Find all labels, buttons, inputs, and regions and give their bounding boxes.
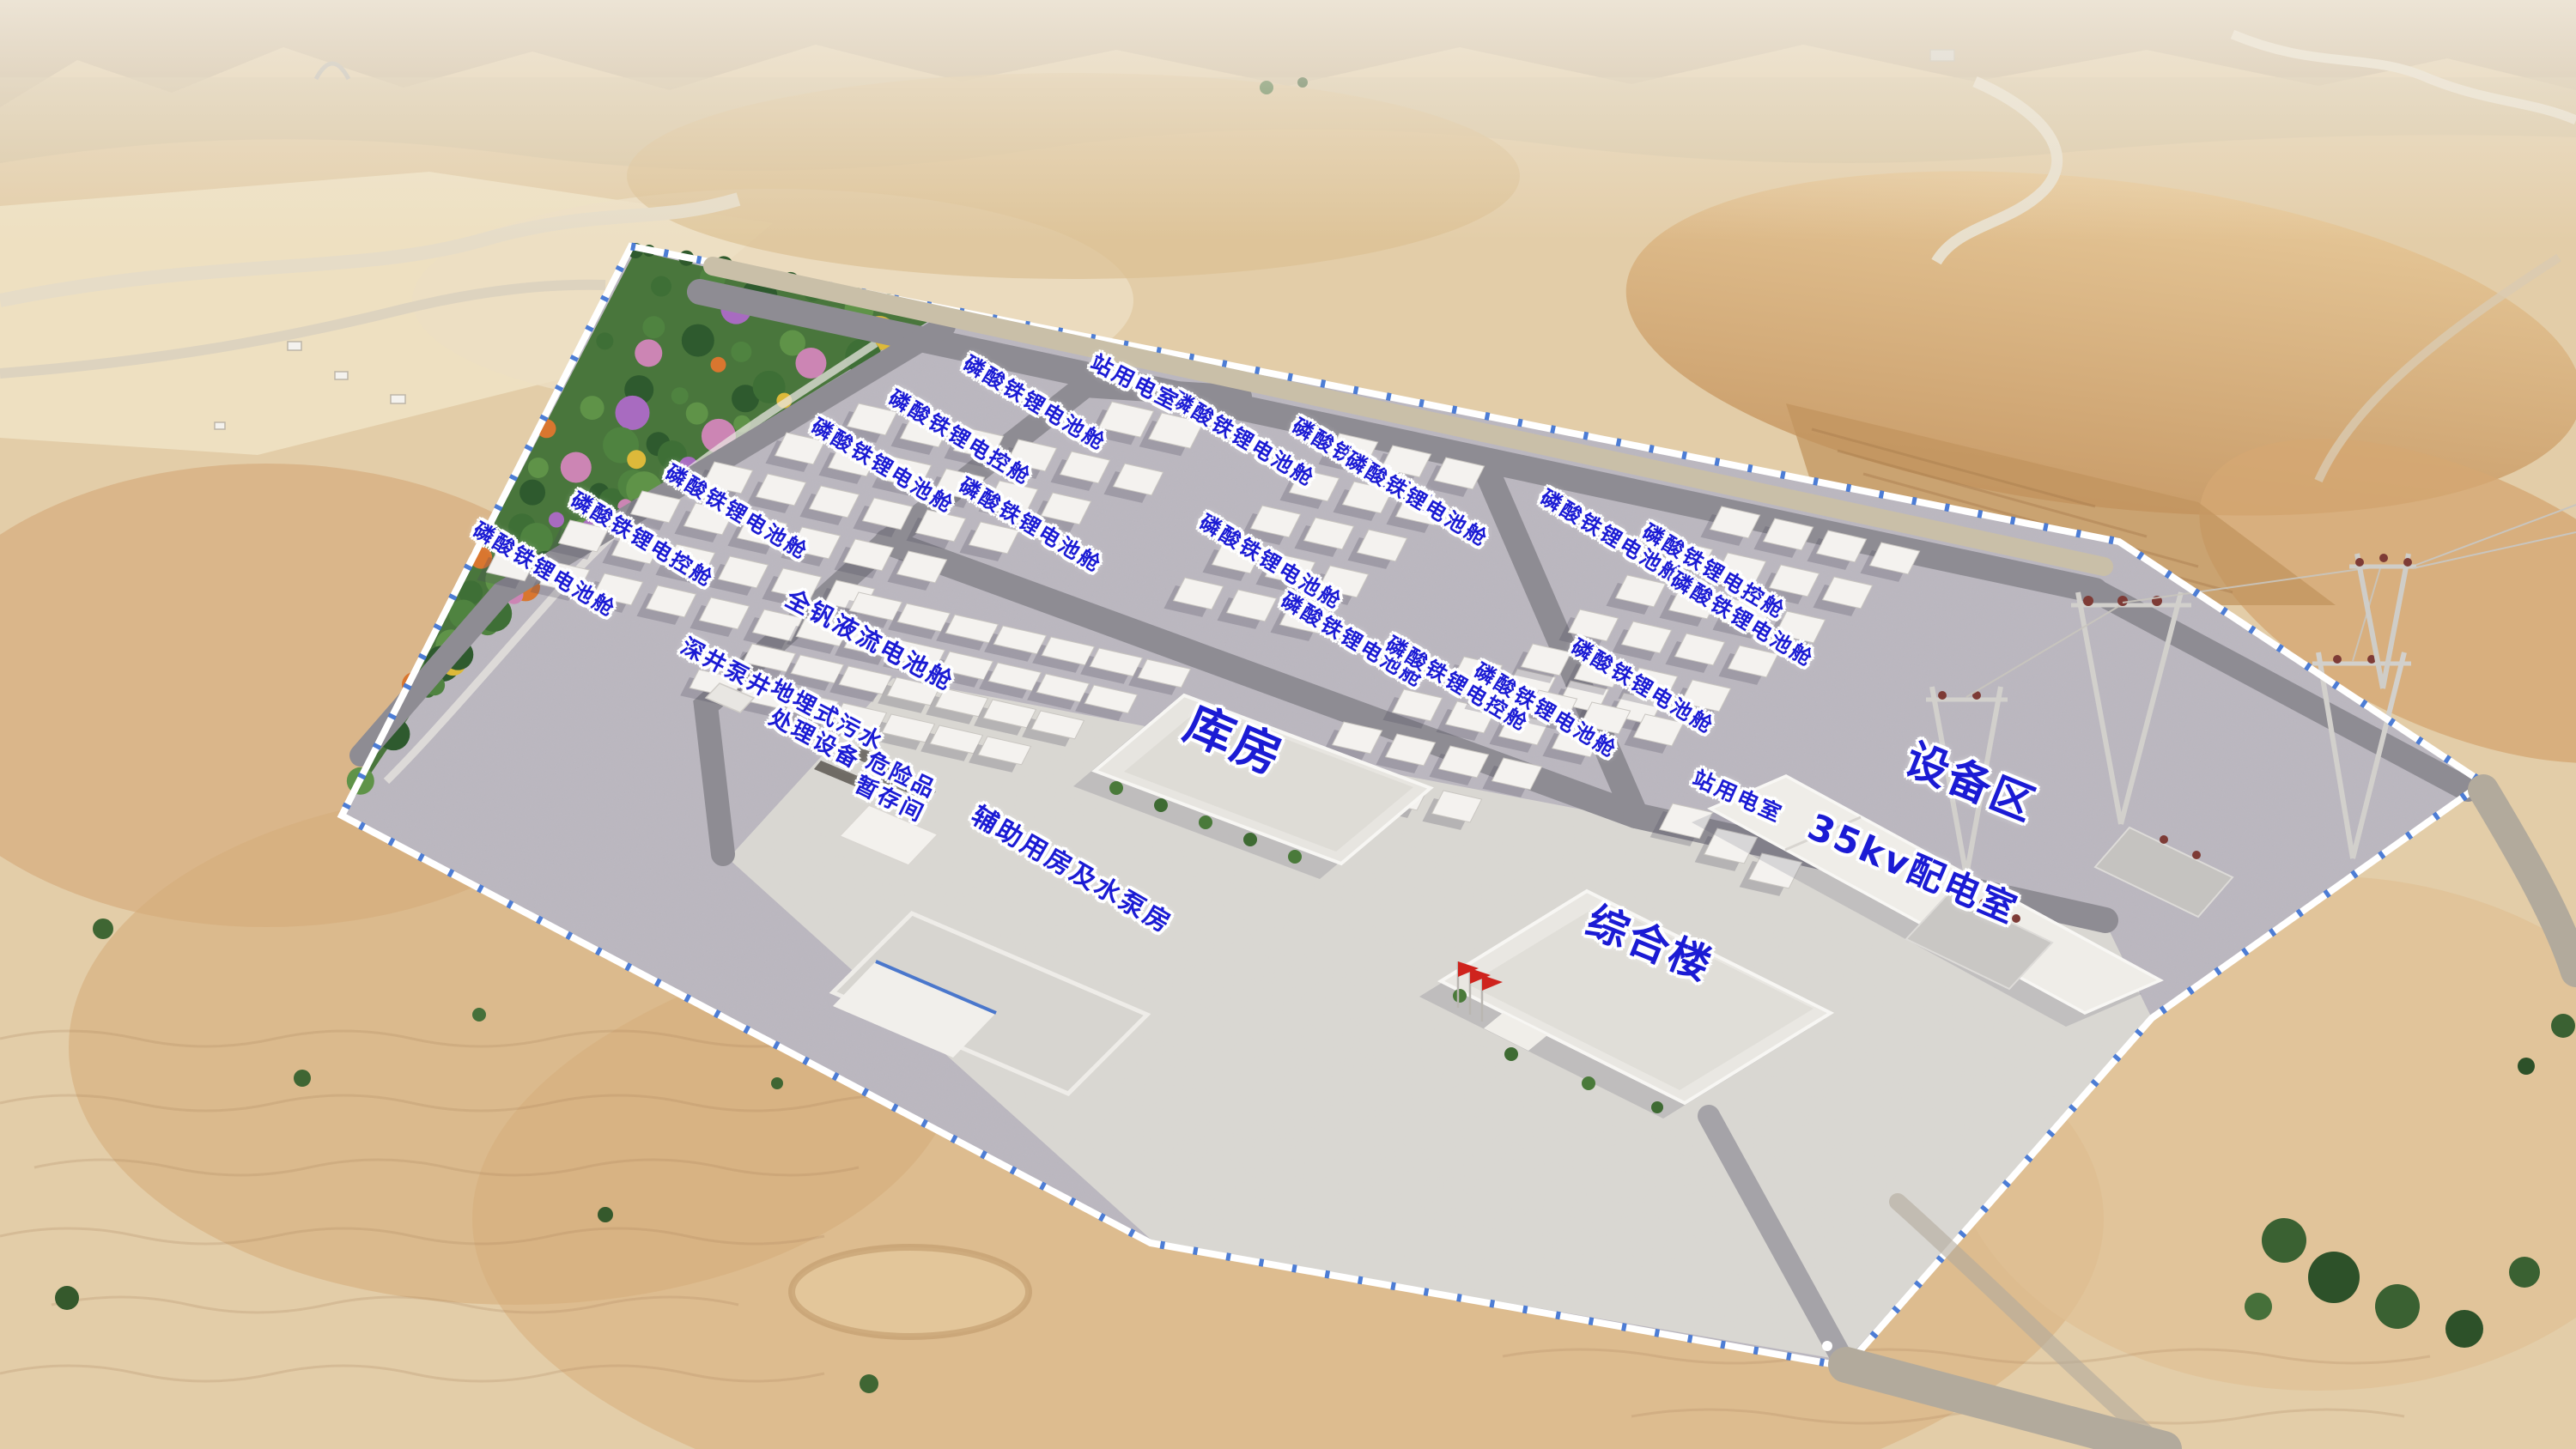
aerial-render-page: { "colors": { "label_text": "#1b1bd4", "… [0, 0, 2576, 1449]
site-aerial-render [0, 0, 2576, 1449]
haze-overlay [0, 0, 2576, 240]
